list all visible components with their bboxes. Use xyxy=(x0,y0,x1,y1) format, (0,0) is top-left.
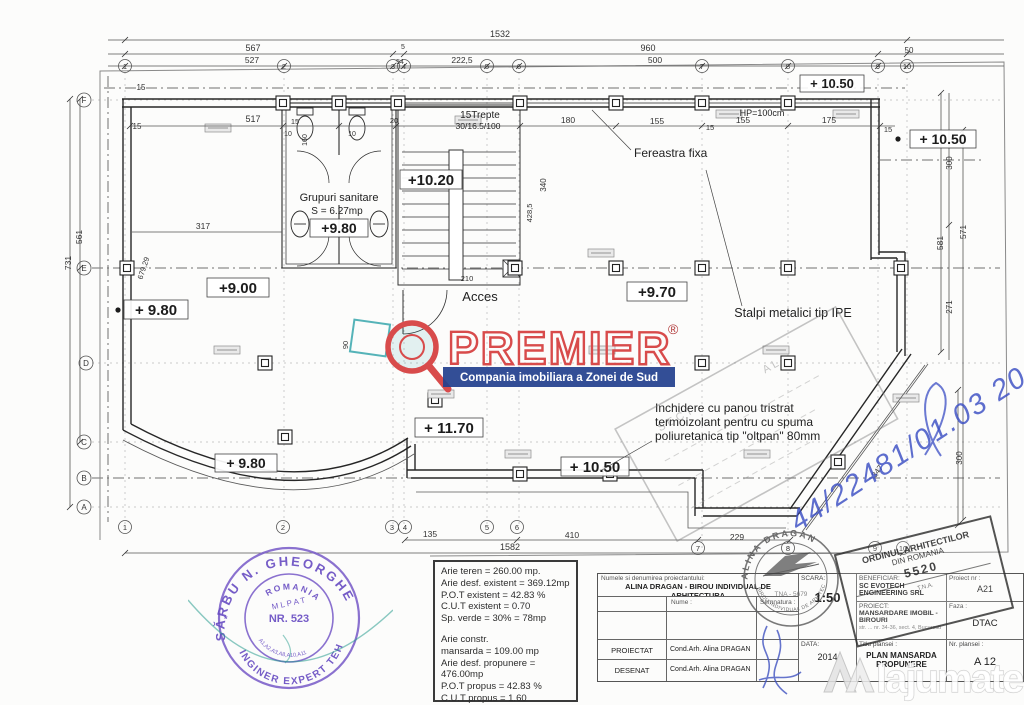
svg-text:567: 567 xyxy=(245,43,260,53)
svg-text:10: 10 xyxy=(284,131,292,138)
svg-text:410: 410 xyxy=(565,530,579,540)
svg-text:15: 15 xyxy=(706,123,714,132)
stair-core xyxy=(398,105,520,334)
svg-text:300: 300 xyxy=(955,451,964,465)
tag xyxy=(833,110,859,118)
svg-text:20: 20 xyxy=(390,116,398,125)
svg-text:M L P A T: M L P A T xyxy=(271,596,306,612)
sanitary-label: Grupuri sanitare xyxy=(300,192,379,204)
svg-text:A1,A2,A3,A8,A10,A11: A1,A2,A3,A8,A10,A11 xyxy=(257,638,307,659)
stat-line: P.O.T propus = 42.83 % xyxy=(441,681,573,693)
svg-text:15: 15 xyxy=(884,125,892,134)
tag xyxy=(505,450,531,458)
svg-text:5: 5 xyxy=(485,523,489,532)
plan-text-labels: 15Trepte 30/16.5/100 Fereastra fixa HP=1… xyxy=(300,108,852,470)
role-desenat: DESENAT xyxy=(598,659,666,681)
svg-text:+ 11.70: + 11.70 xyxy=(424,420,474,437)
tag xyxy=(205,124,231,132)
svg-text:155: 155 xyxy=(650,116,664,126)
tag xyxy=(214,346,240,354)
svg-text:1532: 1532 xyxy=(490,29,510,39)
titlu-line1: PLAN MANSARDA xyxy=(857,651,946,660)
svg-text:A: A xyxy=(81,503,87,512)
svg-text:44/22481/01.03 2014: 44/22481/01.03 2014 xyxy=(784,341,1024,538)
svg-text:+ 10.50: + 10.50 xyxy=(919,131,966,147)
svg-text:5: 5 xyxy=(485,62,489,71)
svg-text:90: 90 xyxy=(341,341,350,349)
level-labels: + 10.50 + 10.50 +10.20 +9.80 +9.00 + 9.8… xyxy=(115,75,976,476)
level-badge: + 10.50 xyxy=(895,130,976,148)
area-statistics-box: Arie teren = 260.00 mp. Arie desf. exist… xyxy=(433,560,578,702)
role-proiectat: PROIECTAT xyxy=(598,639,666,659)
svg-text:4: 4 xyxy=(403,523,407,532)
tag-boxes xyxy=(205,110,919,458)
svg-text:180: 180 xyxy=(561,115,575,125)
ink-signature xyxy=(745,622,815,702)
svg-text:6: 6 xyxy=(515,523,519,532)
svg-text:679,29: 679,29 xyxy=(136,256,152,281)
svg-text:+ 9.80: + 9.80 xyxy=(135,302,177,319)
svg-text:7: 7 xyxy=(700,62,704,71)
floor-plan-drawing: 12 34 56 78 910 12 34 56 78 910 FE DC BA xyxy=(0,0,1024,562)
svg-text:175: 175 xyxy=(822,115,836,125)
stat-line: Arie desf. existent = 369.12mp xyxy=(441,578,573,590)
svg-text:+ 9.80: + 9.80 xyxy=(226,455,266,471)
level-badge: + 9.80 xyxy=(115,300,188,319)
svg-text:210: 210 xyxy=(461,274,474,283)
svg-text:960: 960 xyxy=(640,43,655,53)
name-proiectat: Cond.Arh. Alina DRAGAN xyxy=(666,639,756,659)
stat-line: Arie constr. xyxy=(441,634,573,646)
level-badge: +9.80 xyxy=(310,219,368,237)
svg-text:340: 340 xyxy=(539,178,548,192)
svg-text:222,5: 222,5 xyxy=(451,55,473,65)
svg-text:527: 527 xyxy=(245,55,259,65)
tag xyxy=(588,249,614,257)
level-badge: +9.70 xyxy=(627,282,687,301)
svg-text:135: 135 xyxy=(423,529,437,539)
level-badge: + 9.80 xyxy=(215,454,277,472)
svg-text:6: 6 xyxy=(517,62,521,71)
premier-brand-text: PREMIER xyxy=(448,322,672,374)
svg-text:NR. 523: NR. 523 xyxy=(269,613,309,625)
svg-text:2: 2 xyxy=(282,62,286,71)
svg-text:F: F xyxy=(82,96,87,105)
svg-text:50: 50 xyxy=(905,46,914,55)
tag xyxy=(744,450,770,458)
svg-text:+9.80: +9.80 xyxy=(321,220,357,236)
tag xyxy=(893,394,919,402)
svg-text:D: D xyxy=(83,359,89,368)
premier-watermark: PREMIER ® Compania imobiliara a Zonei de… xyxy=(350,320,679,389)
architect-stamp: ALINA DRAGAN BIROU INDIVIDUAL DE ARHITEC… xyxy=(733,524,849,636)
svg-text:1: 1 xyxy=(123,62,127,71)
svg-text:581: 581 xyxy=(935,236,945,250)
registered-mark: ® xyxy=(668,321,679,337)
svg-text:1582: 1582 xyxy=(500,542,520,552)
svg-text:160: 160 xyxy=(302,134,309,146)
svg-text:517: 517 xyxy=(245,114,260,124)
stat-line: Sp. verde = 30% = 78mp xyxy=(441,613,573,625)
svg-text:3: 3 xyxy=(390,523,394,532)
svg-text:428,5: 428,5 xyxy=(525,204,534,223)
svg-text:+10.20: +10.20 xyxy=(408,172,454,189)
closure-note-line3: poliuretanica tip "oltpan" 80mm xyxy=(655,429,820,443)
svg-text:15: 15 xyxy=(133,122,142,131)
grid-bubbles-left: FE DC BA xyxy=(77,93,93,514)
titlu-line2: PROPUNERE xyxy=(857,660,946,669)
svg-text:10: 10 xyxy=(903,62,911,71)
svg-text:8: 8 xyxy=(786,62,790,71)
svg-text:5: 5 xyxy=(401,44,405,51)
svg-text:+ 10.50: + 10.50 xyxy=(810,76,854,91)
level-badge: + 11.70 xyxy=(415,418,483,437)
svg-text:9: 9 xyxy=(876,62,880,71)
svg-text:2: 2 xyxy=(281,523,285,532)
svg-text:AL: AL xyxy=(761,356,784,376)
access-label: Acces xyxy=(462,289,498,304)
svg-text:*: * xyxy=(224,614,228,624)
svg-text:TNA - 5679: TNA - 5679 xyxy=(775,591,808,598)
svg-text:7: 7 xyxy=(696,544,700,553)
svg-text:561: 561 xyxy=(74,230,84,244)
stat-line: P.O.T existent = 42.83 % xyxy=(441,590,573,602)
svg-text:B: B xyxy=(81,474,86,483)
stat-line: Arie teren = 260.00 mp. xyxy=(441,566,573,578)
level-badge: + 10.50 xyxy=(800,75,864,92)
eagle-sketch xyxy=(763,552,817,576)
name-desenat: Cond.Arh. Alina DRAGAN xyxy=(666,659,756,681)
premier-logo-icon xyxy=(350,320,448,389)
stat-line: mansarda = 109.00 mp xyxy=(441,646,573,658)
svg-text:+ 10.50: + 10.50 xyxy=(570,459,620,476)
svg-text:1: 1 xyxy=(123,523,127,532)
svg-text:300: 300 xyxy=(945,156,954,170)
svg-text:571: 571 xyxy=(958,225,968,239)
scanned-plan-sheet: { "watermark": { "brand": "PREMIER", "re… xyxy=(0,0,1024,703)
level-badge: +10.20 xyxy=(400,170,462,189)
svg-text:731: 731 xyxy=(63,256,73,270)
svg-text:54: 54 xyxy=(396,59,404,66)
tag xyxy=(763,346,789,354)
svg-text:+9.00: +9.00 xyxy=(219,280,257,297)
stat-line: Arie desf. propunere = 476.00mp xyxy=(441,658,573,682)
parapet-height-label: HP=100cm xyxy=(740,108,785,118)
premier-tagline-text: Compania imobiliara a Zonei de Sud xyxy=(460,372,658,384)
engineer-stamp: SĂRBU N. GHEORGHE INGINER EXPERT TEHNIC … xyxy=(188,540,393,700)
svg-text:E: E xyxy=(81,264,86,273)
nr-plansei-value: A 12 xyxy=(947,656,1023,668)
svg-text:500: 500 xyxy=(648,55,662,65)
svg-text:+9.70: +9.70 xyxy=(638,284,676,301)
svg-text:10: 10 xyxy=(348,131,356,138)
svg-text:C: C xyxy=(81,438,87,447)
svg-text:271: 271 xyxy=(945,300,954,314)
nr-plansei-label: Nr. plansei : xyxy=(947,640,1023,648)
level-badge: +9.00 xyxy=(207,278,269,297)
stairs-label: 15Trepte xyxy=(460,110,500,121)
svg-text:15: 15 xyxy=(137,83,146,92)
level-badge: + 10.50 xyxy=(561,457,629,476)
handwritten-note: 44/22481/01.03 2014 xyxy=(784,341,1024,538)
sanitary-rooms xyxy=(282,103,396,268)
fixed-window-label: Fereastra fixa xyxy=(634,146,708,160)
svg-text:15: 15 xyxy=(291,117,299,126)
stairs-spec-label: 30/16.5/100 xyxy=(456,121,501,131)
svg-text:3: 3 xyxy=(391,62,395,71)
sanitary-area-label: S = 6.27mp xyxy=(311,206,363,217)
svg-text:317: 317 xyxy=(196,221,210,231)
stat-line: C.U.T existent = 0.70 xyxy=(441,601,573,613)
